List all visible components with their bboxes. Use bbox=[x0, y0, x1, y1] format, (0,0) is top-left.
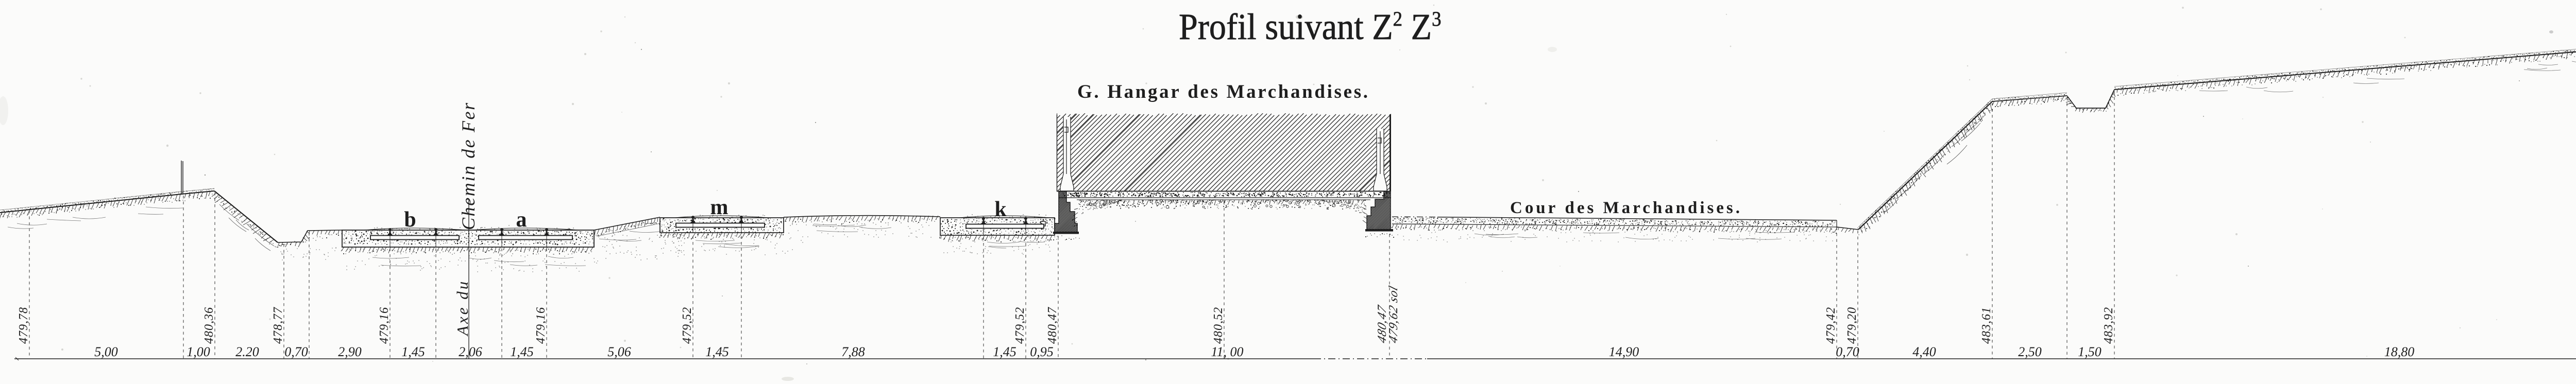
svg-text:480,52: 480,52 bbox=[1212, 307, 1225, 344]
svg-text:1,45: 1,45 bbox=[705, 344, 729, 359]
svg-text:0,70: 0,70 bbox=[1836, 344, 1859, 359]
svg-text:Chemin de Fer: Chemin de Fer bbox=[458, 101, 479, 230]
svg-text:2,90: 2,90 bbox=[338, 344, 362, 359]
svg-text:479,20: 479,20 bbox=[1845, 307, 1859, 344]
svg-text:G. Hangar des Marchandises.: G. Hangar des Marchandises. bbox=[1077, 81, 1368, 102]
svg-text:479,52: 479,52 bbox=[1013, 307, 1027, 344]
svg-text:18,80: 18,80 bbox=[2384, 344, 2415, 359]
svg-text:479,42: 479,42 bbox=[1824, 307, 1838, 344]
svg-text:1,00: 1,00 bbox=[187, 344, 210, 359]
svg-text:479,62 sol: 479,62 sol bbox=[1387, 284, 1400, 344]
svg-text:7,88: 7,88 bbox=[841, 344, 865, 359]
svg-text:Axe du: Axe du bbox=[453, 280, 471, 337]
svg-text:4,40: 4,40 bbox=[1912, 344, 1936, 359]
svg-text:1,45: 1,45 bbox=[993, 344, 1016, 359]
svg-text:14,90: 14,90 bbox=[1609, 344, 1639, 359]
svg-text:479,78: 479,78 bbox=[17, 307, 30, 344]
svg-text:1,45: 1,45 bbox=[401, 344, 425, 359]
svg-text:479,16: 479,16 bbox=[378, 307, 391, 344]
svg-text:5,06: 5,06 bbox=[607, 344, 631, 359]
svg-text:480,47: 480,47 bbox=[1046, 307, 1059, 344]
svg-text:479,52: 479,52 bbox=[681, 307, 694, 344]
svg-text:m: m bbox=[710, 196, 728, 219]
svg-text:k: k bbox=[994, 198, 1007, 221]
svg-text:5,00: 5,00 bbox=[94, 344, 118, 359]
svg-text:478,77: 478,77 bbox=[272, 307, 285, 344]
svg-text:479,16: 479,16 bbox=[534, 307, 548, 344]
svg-text:2,06: 2,06 bbox=[459, 344, 482, 359]
svg-text:0,95: 0,95 bbox=[1030, 344, 1054, 359]
svg-text:b: b bbox=[404, 208, 416, 232]
svg-text:483,92: 483,92 bbox=[2102, 307, 2115, 344]
svg-text:1,50: 1,50 bbox=[2078, 344, 2102, 359]
svg-text:480,36: 480,36 bbox=[202, 307, 216, 344]
svg-text:2,50: 2,50 bbox=[2018, 344, 2042, 359]
svg-text:11, 00: 11, 00 bbox=[1211, 344, 1243, 359]
svg-text:a: a bbox=[516, 208, 527, 232]
svg-text:0,70: 0,70 bbox=[284, 344, 308, 359]
svg-text:2.20: 2.20 bbox=[235, 344, 259, 359]
svg-text:483,61: 483,61 bbox=[1980, 307, 1993, 344]
svg-text:1,45: 1,45 bbox=[510, 344, 534, 359]
